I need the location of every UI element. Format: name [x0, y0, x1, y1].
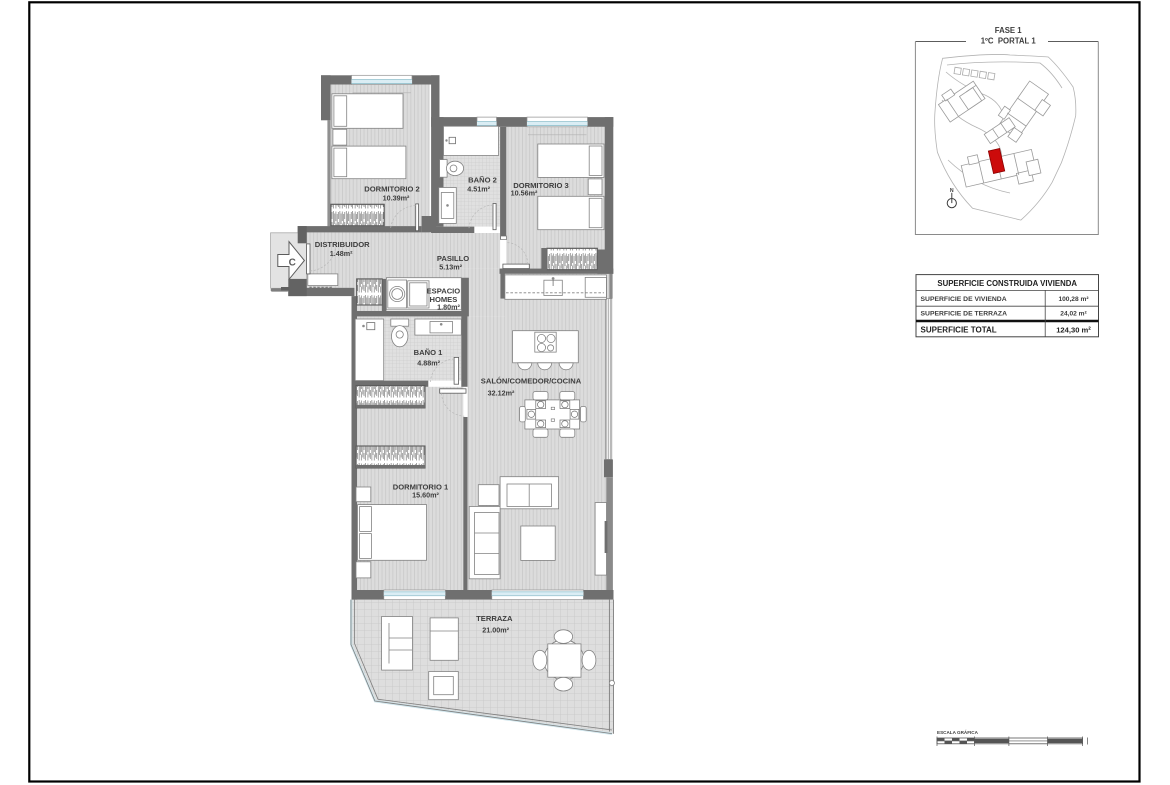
svg-text:SUPERFICIE CONSTRUIDA VIVIENDA: SUPERFICIE CONSTRUIDA VIVIENDA: [937, 279, 1077, 288]
svg-text:32.12m²: 32.12m²: [488, 388, 515, 397]
svg-text:1.80m²: 1.80m²: [437, 303, 460, 312]
svg-text:5.13m²: 5.13m²: [439, 262, 462, 271]
svg-text:TERRAZA: TERRAZA: [476, 614, 513, 623]
svg-text:21.00m²: 21.00m²: [482, 625, 509, 634]
svg-text:C: C: [289, 258, 296, 269]
svg-text:SUPERFICIE DE TERRAZA: SUPERFICIE DE TERRAZA: [921, 311, 1008, 318]
svg-text:SALÓN/COMEDOR/COCINA: SALÓN/COMEDOR/COCINA: [481, 377, 582, 386]
svg-text:1ºC PORTAL 1: 1ºC PORTAL 1: [981, 37, 1037, 46]
svg-text:DISTRIBUIDOR: DISTRIBUIDOR: [315, 240, 370, 249]
svg-text:100,28 m²: 100,28 m²: [1058, 296, 1089, 303]
svg-text:10.39m²: 10.39m²: [383, 194, 410, 203]
svg-text:124,30 m²: 124,30 m²: [1056, 326, 1091, 335]
svg-text:DORMITORIO 2: DORMITORIO 2: [364, 185, 420, 194]
svg-text:N: N: [950, 188, 954, 194]
svg-text:4.88m²: 4.88m²: [417, 359, 440, 368]
svg-text:10.56m²: 10.56m²: [511, 189, 538, 198]
svg-text:24,02 m²: 24,02 m²: [1060, 311, 1087, 318]
svg-text:SUPERFICIE TOTAL: SUPERFICIE TOTAL: [921, 326, 997, 335]
svg-text:BAÑO 1: BAÑO 1: [414, 348, 443, 357]
svg-text:1.48m²: 1.48m²: [330, 249, 353, 258]
svg-text:SUPERFICIE DE VIVIENDA: SUPERFICIE DE VIVIENDA: [921, 296, 1007, 303]
svg-text:4.51m²: 4.51m²: [467, 184, 490, 193]
svg-text:15.60m²: 15.60m²: [412, 491, 439, 500]
svg-text:FASE 1: FASE 1: [995, 26, 1023, 35]
svg-text:ESCALA GRÁFICA: ESCALA GRÁFICA: [937, 729, 979, 735]
